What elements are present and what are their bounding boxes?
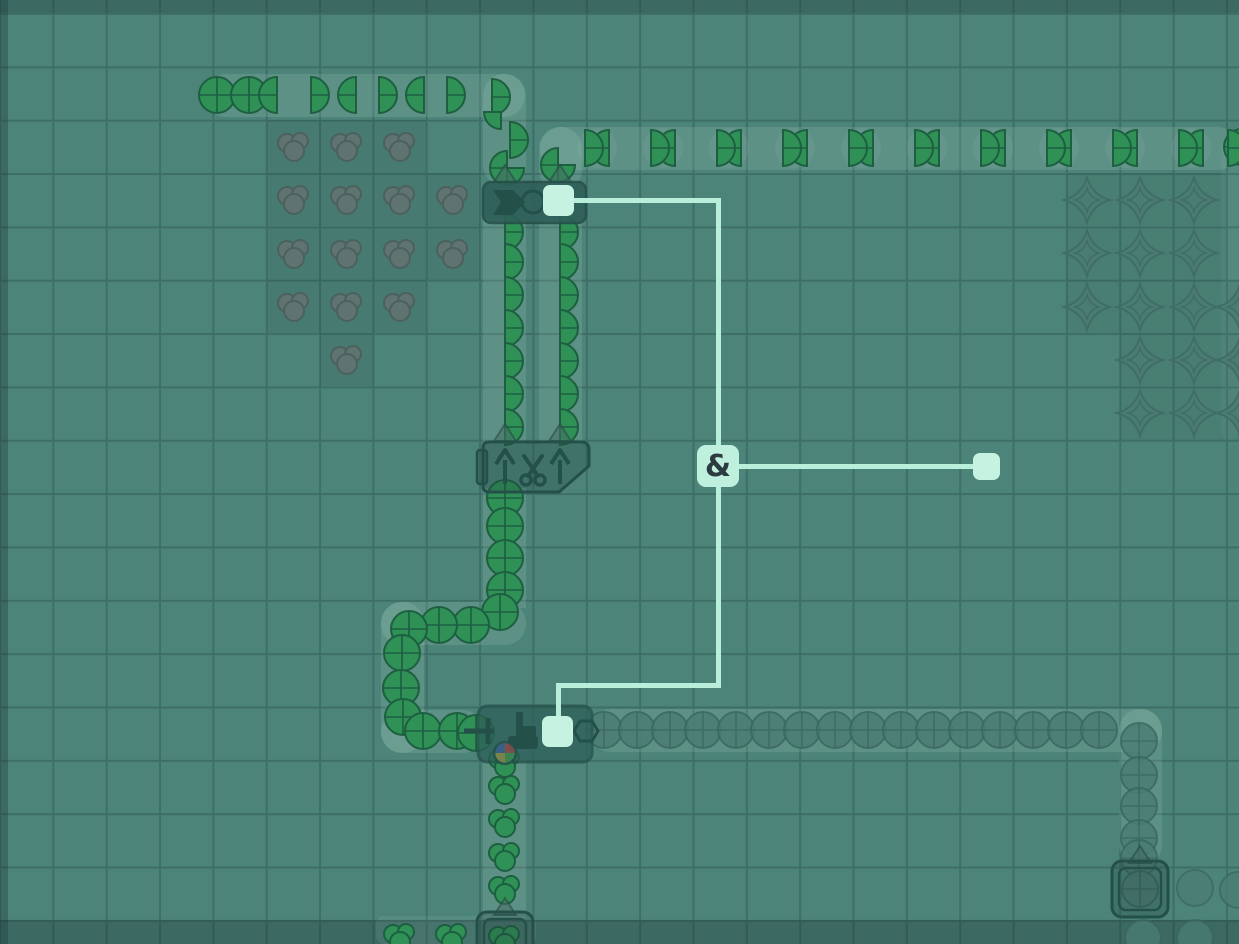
item-circle-dim (1121, 788, 1157, 824)
item-circle (487, 540, 523, 576)
color-patch-blob (443, 194, 463, 214)
item-circle-dim (850, 712, 886, 748)
container-building-body[interactable] (477, 912, 533, 944)
color-patch-blob (337, 248, 357, 268)
item-circle-dim (916, 712, 952, 748)
color-patch-blob (390, 141, 410, 161)
circle-patch (1177, 870, 1213, 906)
item-circle-dim (1048, 712, 1084, 748)
color-patch-blob (284, 194, 304, 214)
circle-patch (1125, 920, 1161, 944)
color-patch-blob (443, 248, 463, 268)
item-circle-dim (652, 712, 688, 748)
color-patch-blob (337, 301, 357, 321)
color-patch-blob (284, 301, 304, 321)
item-circle-dim (1121, 723, 1157, 759)
and-gate-label: & (705, 449, 731, 484)
wire-node[interactable] (973, 453, 1000, 480)
belt-path[interactable] (1221, 140, 1239, 440)
color-patch-blob (337, 141, 357, 161)
circle-patch-shape (1220, 872, 1239, 908)
painter-arm-icon (521, 726, 536, 737)
game-viewport[interactable]: & (0, 0, 1239, 944)
wire-segment[interactable] (556, 688, 561, 718)
color-patch-blob (284, 248, 304, 268)
color-patch-blob (390, 194, 410, 214)
item-circle-dim (685, 712, 721, 748)
item-circle-dim (751, 712, 787, 748)
item-color-cluster (436, 924, 466, 944)
item-circle-dim (982, 712, 1018, 748)
container-building[interactable] (477, 912, 533, 944)
item-color-cluster-blob (495, 784, 515, 804)
item-color-cluster-blob (495, 851, 515, 871)
item-color-cluster-blob (390, 932, 410, 944)
item-circle-dim (718, 712, 754, 748)
color-patch-blob (337, 354, 357, 374)
item-circle (199, 77, 235, 113)
item-color-cluster-blob (442, 932, 462, 944)
cutter-input-notch (477, 450, 487, 484)
circle-patch (1177, 920, 1213, 944)
item-half-R (1228, 130, 1239, 166)
wire-segment[interactable] (556, 683, 721, 688)
item-color-cluster-blob (495, 817, 515, 837)
circle-patch-shape (1177, 920, 1213, 944)
item-circle-dim (1081, 712, 1117, 748)
circle-patch-shape (1177, 870, 1213, 906)
item-circle-dim (949, 712, 985, 748)
painter-building[interactable] (464, 706, 598, 764)
cutter-building[interactable] (477, 442, 589, 492)
item-circle-dim (1015, 712, 1051, 748)
container-building[interactable] (1112, 861, 1168, 917)
item-circle (453, 607, 489, 643)
circle-patch (1220, 872, 1239, 908)
item-circle-dim (619, 712, 655, 748)
item-color-cluster (384, 924, 414, 944)
item-circle (384, 635, 420, 671)
wire-segment[interactable] (558, 198, 721, 203)
and-gate[interactable]: & (697, 445, 739, 487)
wire-segment[interactable] (720, 464, 982, 469)
color-patch-blob (284, 141, 304, 161)
color-wheel-icon (494, 742, 516, 764)
wire-node[interactable] (542, 716, 573, 747)
item-circle-dim (817, 712, 853, 748)
factory-scene (0, 0, 1239, 944)
color-patch-blob (390, 248, 410, 268)
wires[interactable] (542, 185, 1000, 747)
item-circle (405, 713, 441, 749)
color-patch-blob (390, 301, 410, 321)
circle-patch-shape (1125, 920, 1161, 944)
item-circle-dim (784, 712, 820, 748)
item-circle (487, 508, 523, 544)
wire-node[interactable] (543, 185, 574, 216)
wire-segment[interactable] (716, 486, 721, 688)
belt-arrows (494, 165, 1151, 915)
item-circle-dim (883, 712, 919, 748)
wire-segment[interactable] (716, 198, 721, 448)
color-patch-blob (337, 194, 357, 214)
